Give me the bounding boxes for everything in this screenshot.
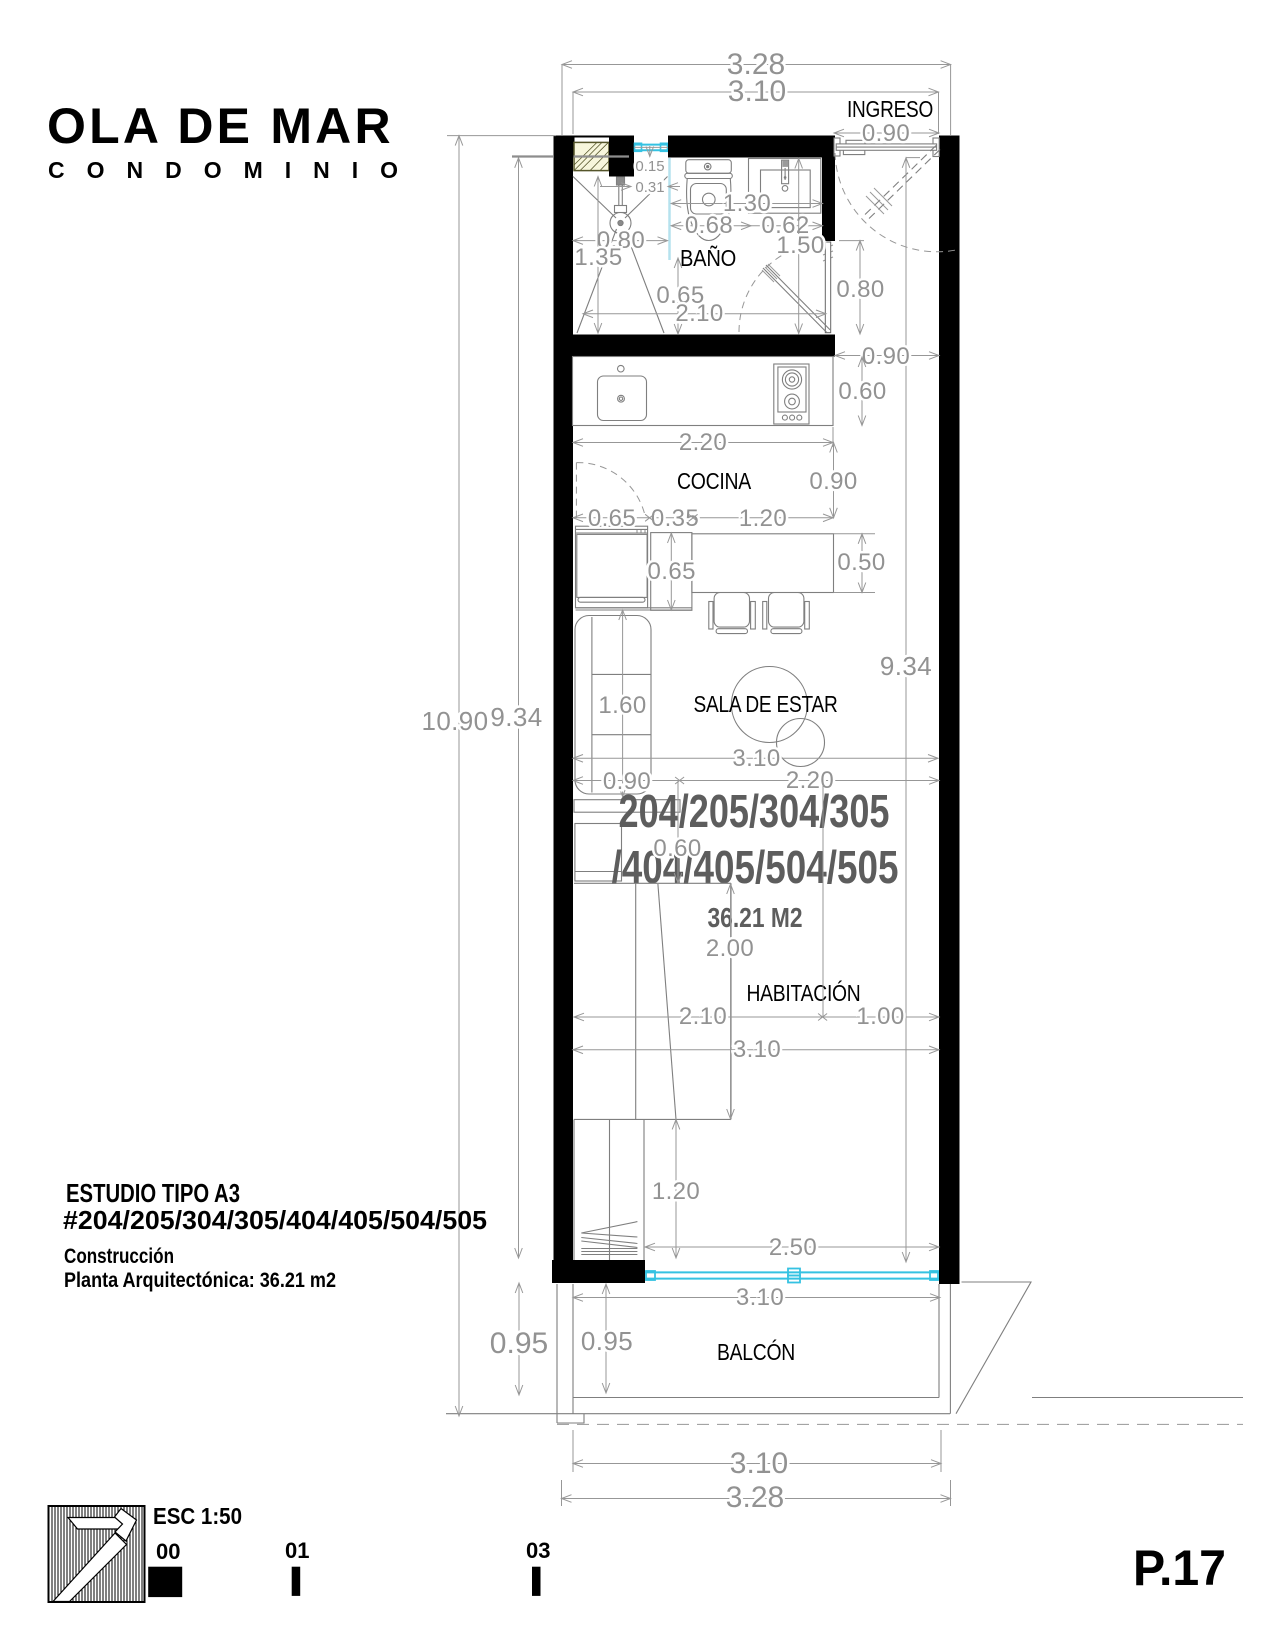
svg-text:0.90: 0.90 [862, 343, 910, 370]
svg-text:0.35: 0.35 [651, 505, 699, 532]
svg-text:3.10: 3.10 [730, 1447, 788, 1480]
svg-text:INGRESO: INGRESO [847, 96, 933, 122]
svg-text:0.90: 0.90 [809, 468, 857, 495]
svg-text:3.10: 3.10 [732, 745, 780, 772]
svg-text:2.10: 2.10 [679, 1003, 727, 1030]
svg-text:3.10: 3.10 [736, 1284, 784, 1311]
svg-text:Construcción: Construcción [64, 1245, 174, 1268]
svg-text:9.34: 9.34 [490, 702, 542, 732]
svg-text:0.60: 0.60 [653, 835, 701, 862]
svg-text:SALA DE ESTAR: SALA DE ESTAR [694, 691, 838, 717]
svg-text:01: 01 [285, 1538, 309, 1563]
svg-text:0.31: 0.31 [635, 179, 664, 196]
svg-text:0.90: 0.90 [603, 768, 651, 795]
svg-text:1.20: 1.20 [652, 1178, 700, 1205]
svg-text:9.34: 9.34 [880, 651, 932, 681]
svg-text:0.68: 0.68 [685, 212, 733, 239]
svg-text:BALCÓN: BALCÓN [717, 1339, 795, 1365]
svg-text:BAÑO: BAÑO [680, 245, 736, 271]
svg-text:0.95: 0.95 [581, 1326, 633, 1356]
svg-text:3.28: 3.28 [726, 1481, 784, 1514]
svg-text:OLA DE MAR: OLA DE MAR [47, 98, 394, 154]
svg-text:0.15: 0.15 [635, 158, 664, 175]
svg-text:2.00: 2.00 [706, 935, 754, 962]
svg-text:0.95: 0.95 [490, 1327, 548, 1360]
svg-text:P.17: P.17 [1133, 1540, 1226, 1596]
svg-text:1.20: 1.20 [739, 505, 787, 532]
svg-text:0.65: 0.65 [648, 558, 696, 585]
svg-text:0.65: 0.65 [588, 505, 636, 532]
svg-text:ESC 1:50: ESC 1:50 [153, 1503, 242, 1529]
svg-text:03: 03 [526, 1538, 550, 1563]
svg-text:00: 00 [156, 1539, 180, 1564]
svg-text:0.80: 0.80 [836, 276, 884, 303]
svg-text:1.50: 1.50 [776, 232, 824, 259]
svg-text:COCINA: COCINA [677, 468, 752, 494]
svg-text:2.10: 2.10 [675, 300, 723, 327]
svg-text:0.50: 0.50 [837, 549, 885, 576]
svg-text:2.20: 2.20 [786, 767, 834, 794]
svg-text:0.90: 0.90 [862, 120, 910, 147]
svg-text:10.90: 10.90 [421, 706, 488, 736]
svg-text:HABITACIÓN: HABITACIÓN [747, 980, 861, 1006]
svg-text:3.10: 3.10 [728, 75, 786, 108]
svg-text:ESTUDIO TIPO A3: ESTUDIO TIPO A3 [66, 1178, 240, 1208]
svg-text:1.00: 1.00 [856, 1003, 904, 1030]
svg-text:2.20: 2.20 [679, 429, 727, 456]
svg-text:3.10: 3.10 [733, 1036, 781, 1063]
svg-text:1.35: 1.35 [574, 244, 622, 271]
svg-text:36.21 M2: 36.21 M2 [708, 902, 803, 933]
svg-text:2.50: 2.50 [769, 1234, 817, 1261]
svg-text:CONDOMINIO: CONDOMINIO [48, 157, 420, 183]
svg-text:204/205/304/305: 204/205/304/305 [619, 785, 890, 837]
svg-text:Planta Arquitectónica: 36.21 m: Planta Arquitectónica: 36.21 m2 [64, 1269, 336, 1292]
svg-text:1.60: 1.60 [598, 692, 646, 719]
svg-text:0.60: 0.60 [838, 378, 886, 405]
svg-text:#204/205/304/305/404/405/504/5: #204/205/304/305/404/405/504/505 [63, 1205, 487, 1235]
